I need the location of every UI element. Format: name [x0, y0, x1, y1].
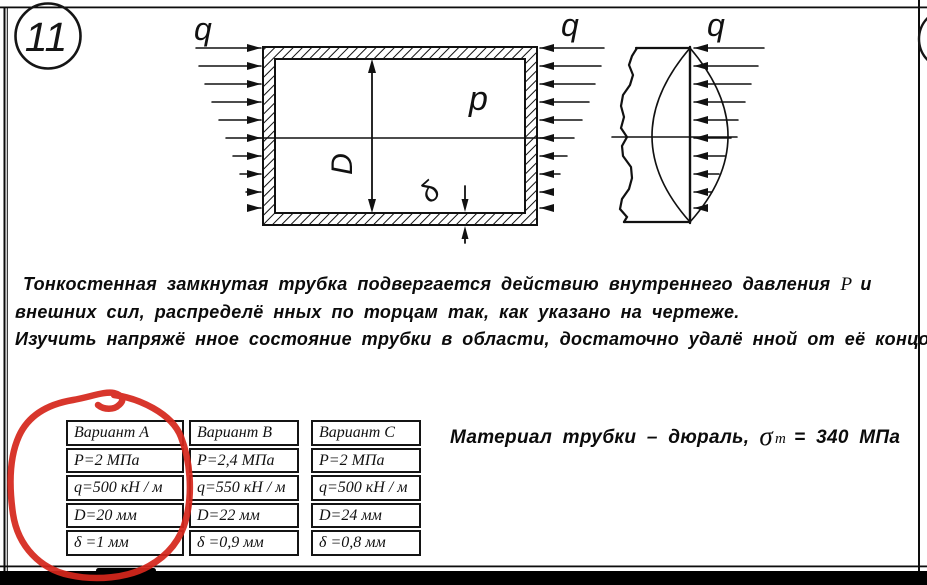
- table-cell: P=2 МПа: [66, 448, 184, 474]
- sigma-symbol: σ: [759, 421, 773, 451]
- table-cell: q=500 кН / м: [66, 475, 184, 501]
- bottom-bar-smudge: [96, 568, 156, 573]
- problem-line-1-text: Тонкостенная замкнутая трубка подвергает…: [23, 274, 830, 294]
- problem-line-1-tail: и: [860, 274, 871, 294]
- load-arc-left: [652, 48, 690, 222]
- variant-b-column: Вариант В P=2,4 МПа q=550 кН / м D=22 мм…: [189, 420, 299, 558]
- variant-c-header: Вариант С: [311, 420, 421, 446]
- load-fan-end: [694, 48, 764, 208]
- problem-line-1: Тонкостенная замкнутая трубка подвергает…: [15, 271, 920, 299]
- border-left-line-inner: [7, 7, 8, 585]
- table-cell: δ =0,8 мм: [311, 530, 421, 556]
- end-view: q: [612, 7, 764, 223]
- variant-b-header: Вариант В: [189, 420, 299, 446]
- problem-line-3: Изучить напряжё нное состояние трубки в …: [15, 326, 920, 354]
- q-label-left: q: [194, 11, 212, 47]
- next-balloon-fragment: [919, 9, 927, 69]
- border-top-line: [0, 7, 927, 9]
- load-fan-right: [540, 48, 604, 208]
- q-label-right: q: [707, 7, 725, 43]
- load-arc-right: [690, 48, 728, 222]
- main-section-view: D p δ: [194, 7, 604, 243]
- sigma-subscript: m: [775, 431, 786, 447]
- problem-statement: Тонкостенная замкнутая трубка подвергает…: [15, 271, 920, 354]
- table-cell: δ =1 мм: [66, 530, 184, 556]
- dimension-D: D: [326, 59, 376, 213]
- border-left-line: [4, 7, 6, 585]
- problem-number: 11: [25, 14, 68, 60]
- table-cell: P=2 МПа: [311, 448, 421, 474]
- thickness-callout: δ: [413, 175, 468, 243]
- pressure-symbol: P: [840, 274, 852, 295]
- load-fan-left: [196, 48, 261, 208]
- table-cell: D=22 мм: [189, 503, 299, 529]
- problem-balloon: 11: [16, 4, 81, 69]
- table-cell: δ =0,9 мм: [189, 530, 299, 556]
- table-cell: D=20 мм: [66, 503, 184, 529]
- table-cell: q=500 кН / м: [311, 475, 421, 501]
- thickness-label: δ: [413, 175, 446, 209]
- variant-a-header: Вариант А: [66, 420, 184, 446]
- problem-line-2: внешних сил, распределё нных по торцам т…: [15, 299, 920, 327]
- pressure-label: p: [468, 80, 488, 118]
- bottom-black-bar: [0, 571, 927, 585]
- table-cell: P=2,4 МПа: [189, 448, 299, 474]
- material-note: Материал трубки – дюраль,σm= 340 МПа: [450, 421, 900, 452]
- tube-wall-hatched: [263, 47, 537, 225]
- variant-c-column: Вариант С P=2 МПа q=500 кН / м D=24 мм δ…: [311, 420, 421, 558]
- diameter-label: D: [326, 153, 359, 175]
- variant-a-column: Вариант А P=2 МПа q=500 кН / м D=20 мм δ…: [66, 420, 184, 558]
- border-bottom-line: [0, 566, 927, 568]
- material-text: Материал трубки – дюраль,: [450, 427, 749, 448]
- material-value: = 340 МПа: [794, 427, 900, 448]
- table-cell: q=550 кН / м: [189, 475, 299, 501]
- table-cell: D=24 мм: [311, 503, 421, 529]
- break-line: [620, 48, 637, 222]
- q-label-mid: q: [561, 7, 579, 43]
